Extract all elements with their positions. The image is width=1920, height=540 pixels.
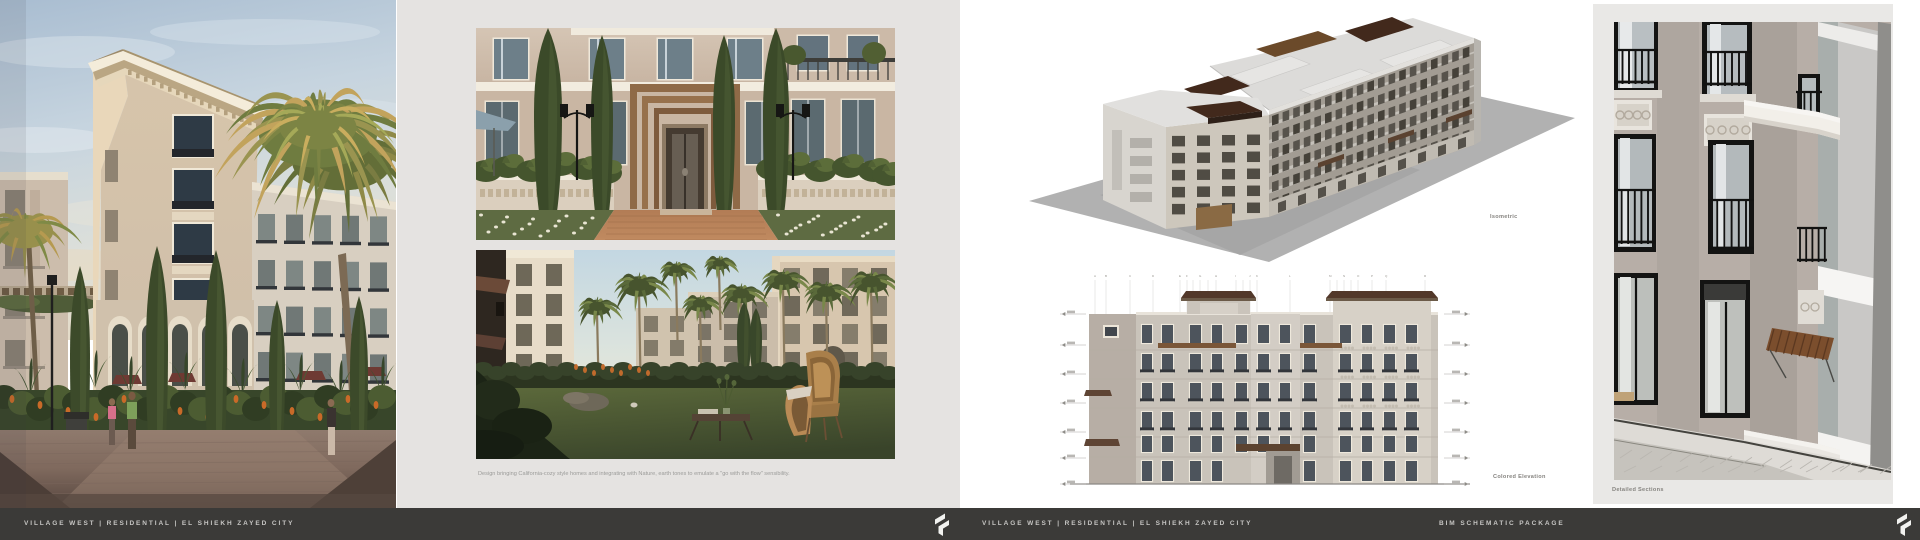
- svg-text:G: G: [1199, 274, 1202, 278]
- svg-text:L: L: [1289, 274, 1291, 278]
- svg-text:J: J: [1249, 274, 1251, 278]
- svg-text:H: H: [1215, 274, 1217, 278]
- svg-text:O: O: [1357, 274, 1360, 278]
- svg-text:E: E: [1179, 274, 1181, 278]
- svg-text:K: K: [1256, 274, 1258, 278]
- svg-text:C: C: [1129, 274, 1132, 278]
- svg-text:M: M: [1329, 274, 1332, 278]
- svg-text:F: F: [1186, 274, 1188, 278]
- svg-text:I: I: [1235, 274, 1236, 278]
- svg-text:P: P: [1371, 274, 1373, 278]
- svg-text:R: R: [1424, 274, 1427, 278]
- svg-text:B: B: [1105, 274, 1107, 278]
- svg-text:N: N: [1343, 274, 1345, 278]
- svg-text:A: A: [1094, 274, 1096, 278]
- svg-text:Q: Q: [1385, 274, 1388, 278]
- svg-text:D: D: [1152, 274, 1155, 278]
